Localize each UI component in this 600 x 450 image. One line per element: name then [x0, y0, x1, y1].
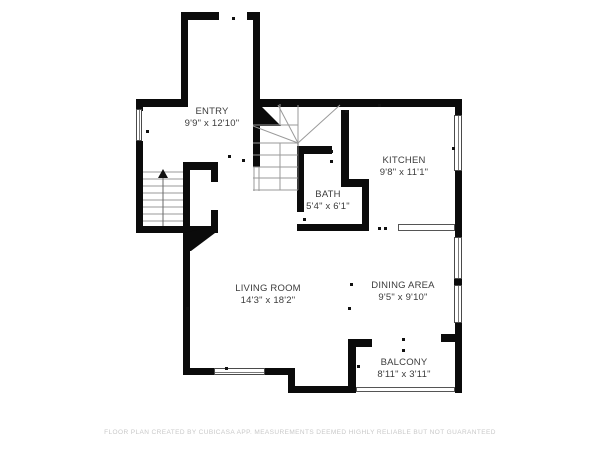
room-dimensions: 14'3" x 18'2": [235, 295, 301, 307]
diagonal-wall: [183, 226, 215, 251]
room-label-entry: ENTRY 9'9" x 12'10": [185, 106, 240, 129]
stairs-and-diagonals: [0, 0, 600, 450]
room-name: KITCHEN: [380, 155, 429, 167]
room-dimensions: 9'8" x 11'1": [380, 167, 429, 179]
floor-plan: ENTRY 9'9" x 12'10" KITCHEN 9'8" x 11'1"…: [0, 0, 600, 450]
room-name: LIVING ROOM: [235, 283, 301, 295]
footer-disclaimer: FLOOR PLAN CREATED BY CUBICASA APP. MEAS…: [0, 429, 600, 436]
room-label-bath: BATH 5'4" x 6'1": [306, 189, 350, 212]
stair-up-arrow: [158, 169, 168, 178]
room-label-living-room: LIVING ROOM 14'3" x 18'2": [235, 283, 301, 306]
floor-plan-page: { "rooms": [ {"id": "entry", "name": "EN…: [0, 0, 600, 450]
room-label-dining-area: DINING AREA 9'5" x 9'10": [371, 280, 434, 303]
left-staircase: [143, 172, 183, 226]
room-dimensions: 5'4" x 6'1": [306, 201, 350, 213]
room-dimensions: 9'9" x 12'10": [185, 118, 240, 130]
room-dimensions: 8'11" x 3'11": [377, 369, 430, 381]
room-label-kitchen: KITCHEN 9'8" x 11'1": [380, 155, 429, 178]
room-label-balcony: BALCONY 8'11" x 3'11": [377, 357, 430, 380]
room-name: BATH: [306, 189, 350, 201]
room-dimensions: 9'5" x 9'10": [371, 292, 434, 304]
room-name: ENTRY: [185, 106, 240, 118]
diagonal-wall: [253, 107, 281, 126]
room-name: BALCONY: [377, 357, 430, 369]
room-name: DINING AREA: [371, 280, 434, 292]
